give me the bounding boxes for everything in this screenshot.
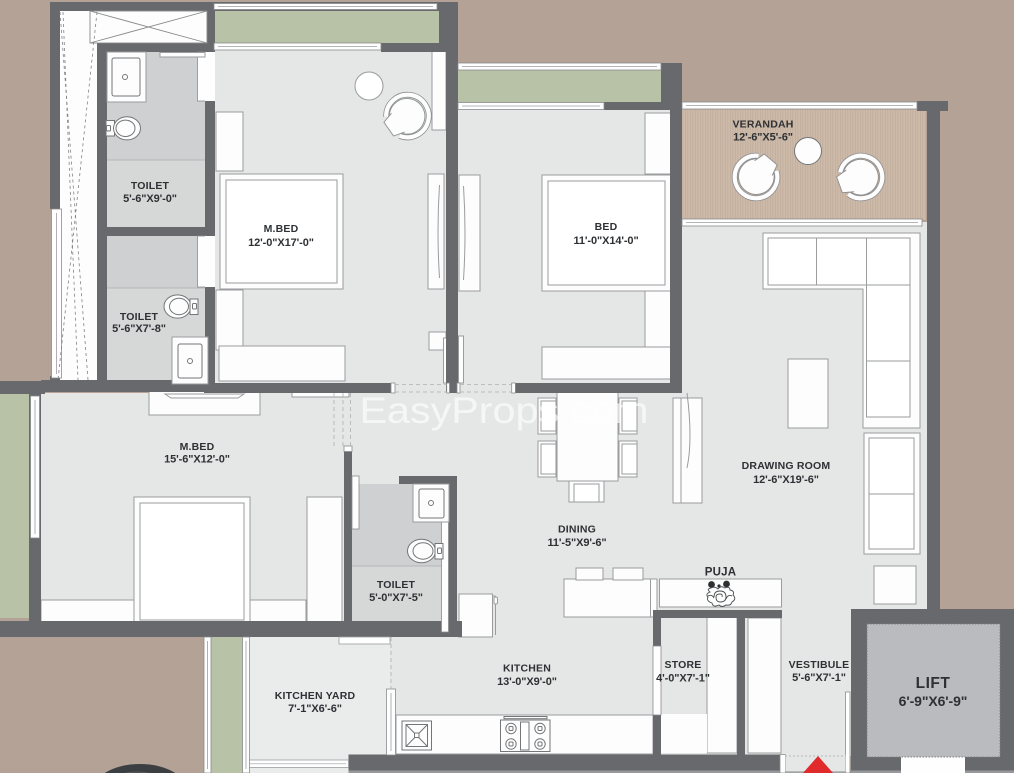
- svg-text:13'-0"X9'-0": 13'-0"X9'-0": [497, 676, 557, 688]
- svg-text:TOILET: TOILET: [120, 311, 159, 323]
- svg-text:DRAWING ROOM: DRAWING ROOM: [742, 460, 831, 472]
- svg-text:5'-6"X9'-0": 5'-6"X9'-0": [123, 193, 177, 205]
- svg-text:VERANDAH: VERANDAH: [732, 119, 793, 131]
- svg-text:12'-0"X17'-0": 12'-0"X17'-0": [248, 237, 314, 249]
- svg-text:PUJA: PUJA: [705, 567, 736, 579]
- svg-text:5'-6"X7'-1": 5'-6"X7'-1": [792, 672, 846, 684]
- svg-text:EasyProps.com: EasyProps.com: [360, 390, 649, 431]
- svg-text:VESTIBULE: VESTIBULE: [789, 659, 850, 671]
- svg-text:BED: BED: [595, 221, 618, 233]
- svg-text:M.BED: M.BED: [264, 223, 299, 235]
- svg-text:15'-6"X12'-0": 15'-6"X12'-0": [164, 454, 230, 466]
- svg-text:KITCHEN YARD: KITCHEN YARD: [275, 690, 356, 702]
- svg-text:11'-0"X14'-0": 11'-0"X14'-0": [573, 235, 638, 247]
- svg-text:12'-6"X5'-6": 12'-6"X5'-6": [733, 132, 793, 144]
- svg-text:5'-0"X7'-5": 5'-0"X7'-5": [369, 592, 423, 604]
- svg-text:DINING: DINING: [558, 524, 596, 536]
- svg-text:KITCHEN: KITCHEN: [503, 663, 551, 675]
- svg-text:LIFT: LIFT: [916, 675, 951, 692]
- svg-text:M.BED: M.BED: [180, 441, 215, 453]
- svg-text:5'-6"X7'-8": 5'-6"X7'-8": [112, 323, 166, 335]
- svg-text:12'-6"X19'-6": 12'-6"X19'-6": [753, 474, 819, 486]
- svg-text:6'-9"X6'-9": 6'-9"X6'-9": [899, 693, 968, 709]
- svg-text:STORE: STORE: [665, 659, 702, 671]
- svg-text:7'-1"X6'-6": 7'-1"X6'-6": [288, 703, 342, 715]
- svg-text:TOILET: TOILET: [131, 180, 170, 192]
- svg-text:11'-5"X9'-6": 11'-5"X9'-6": [547, 537, 606, 549]
- svg-text:4'-0"X7'-1": 4'-0"X7'-1": [656, 673, 710, 685]
- svg-text:TOILET: TOILET: [377, 579, 416, 591]
